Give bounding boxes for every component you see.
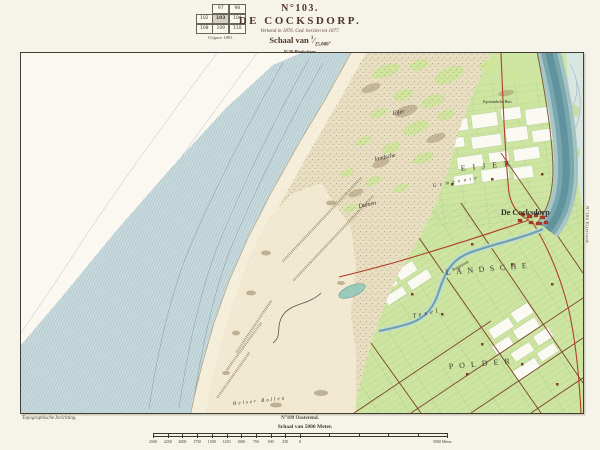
label-farm: Eijerlandsche Huis (483, 100, 512, 104)
title-block: N°103. DE COCKSDORP. Verkend in 1876. Ge… (0, 3, 600, 54)
map-sheet-page: 9798102103104108109110 Uitgave 1881. N°1… (0, 0, 600, 450)
scalebar-tick (359, 433, 360, 437)
scalebar-tick (329, 433, 330, 437)
scale-prefix: Schaal van (269, 35, 308, 45)
scale-statement: Schaal van 1⁄25.000. (0, 35, 600, 48)
scalebar-tick-label: 750 (249, 439, 263, 444)
scalebar-tick-label: 1500 (205, 439, 219, 444)
label-town: De Cocksdorp (501, 208, 550, 217)
scalebar-tick (182, 433, 183, 438)
map-frame: Eijer landsche Duinen EIJER Gemeente De … (20, 52, 584, 414)
scalebar: 25002250200017501500125010007505002500 5… (153, 433, 447, 445)
scalebar-tick (256, 433, 257, 438)
credit-line: Topographische Inrichting. (22, 416, 77, 421)
scalebar-tick-label: 1750 (190, 439, 204, 444)
scalebar-tick (285, 433, 286, 438)
scalebar-tick (241, 433, 242, 438)
scalebar-tick (271, 433, 272, 438)
scalebar-tick (418, 433, 419, 437)
scalebar-tick-label: 0 (293, 439, 307, 444)
page-title: DE COCKSDORP. (0, 15, 600, 27)
scalebar-tick-label: 1250 (220, 439, 234, 444)
scalebar-tick (153, 433, 154, 438)
scalebar-tick-label: 2500 (146, 439, 160, 444)
scale-denominator: 25.000 (315, 43, 329, 48)
map-canvas: Eijer landsche Duinen EIJER Gemeente De … (21, 53, 583, 413)
sheet-number: N°103. (0, 3, 600, 14)
scale-numerator: 1 (311, 36, 314, 41)
scalebar-tick-label: 2250 (161, 439, 175, 444)
scalebar-tick-label: 500 (264, 439, 278, 444)
scalebar-end-label: 5000 Meter. (433, 439, 477, 444)
scalebar-title: Schaal van 5000 Meter. (200, 424, 410, 430)
scalebar-tick (388, 433, 389, 437)
scalebar-tick (227, 433, 228, 438)
adjacent-sheet-bottom: N°109 Oosterend. (240, 416, 360, 421)
scalebar-tick (300, 433, 301, 438)
scalebar-tick-label: 2000 (175, 439, 189, 444)
scalebar-tick (212, 433, 213, 438)
scalebar-tick (197, 433, 198, 438)
scalebar-tick-label: 250 (278, 439, 292, 444)
survey-note: Verkend in 1876. Ged. herzien tot 1877. (0, 29, 600, 34)
adjacent-sheet-right: N°104 Eijerland. (585, 206, 590, 245)
scalebar-tick (168, 433, 169, 438)
scalebar-tick-label: 1000 (234, 439, 248, 444)
scalebar-tick (447, 433, 448, 438)
